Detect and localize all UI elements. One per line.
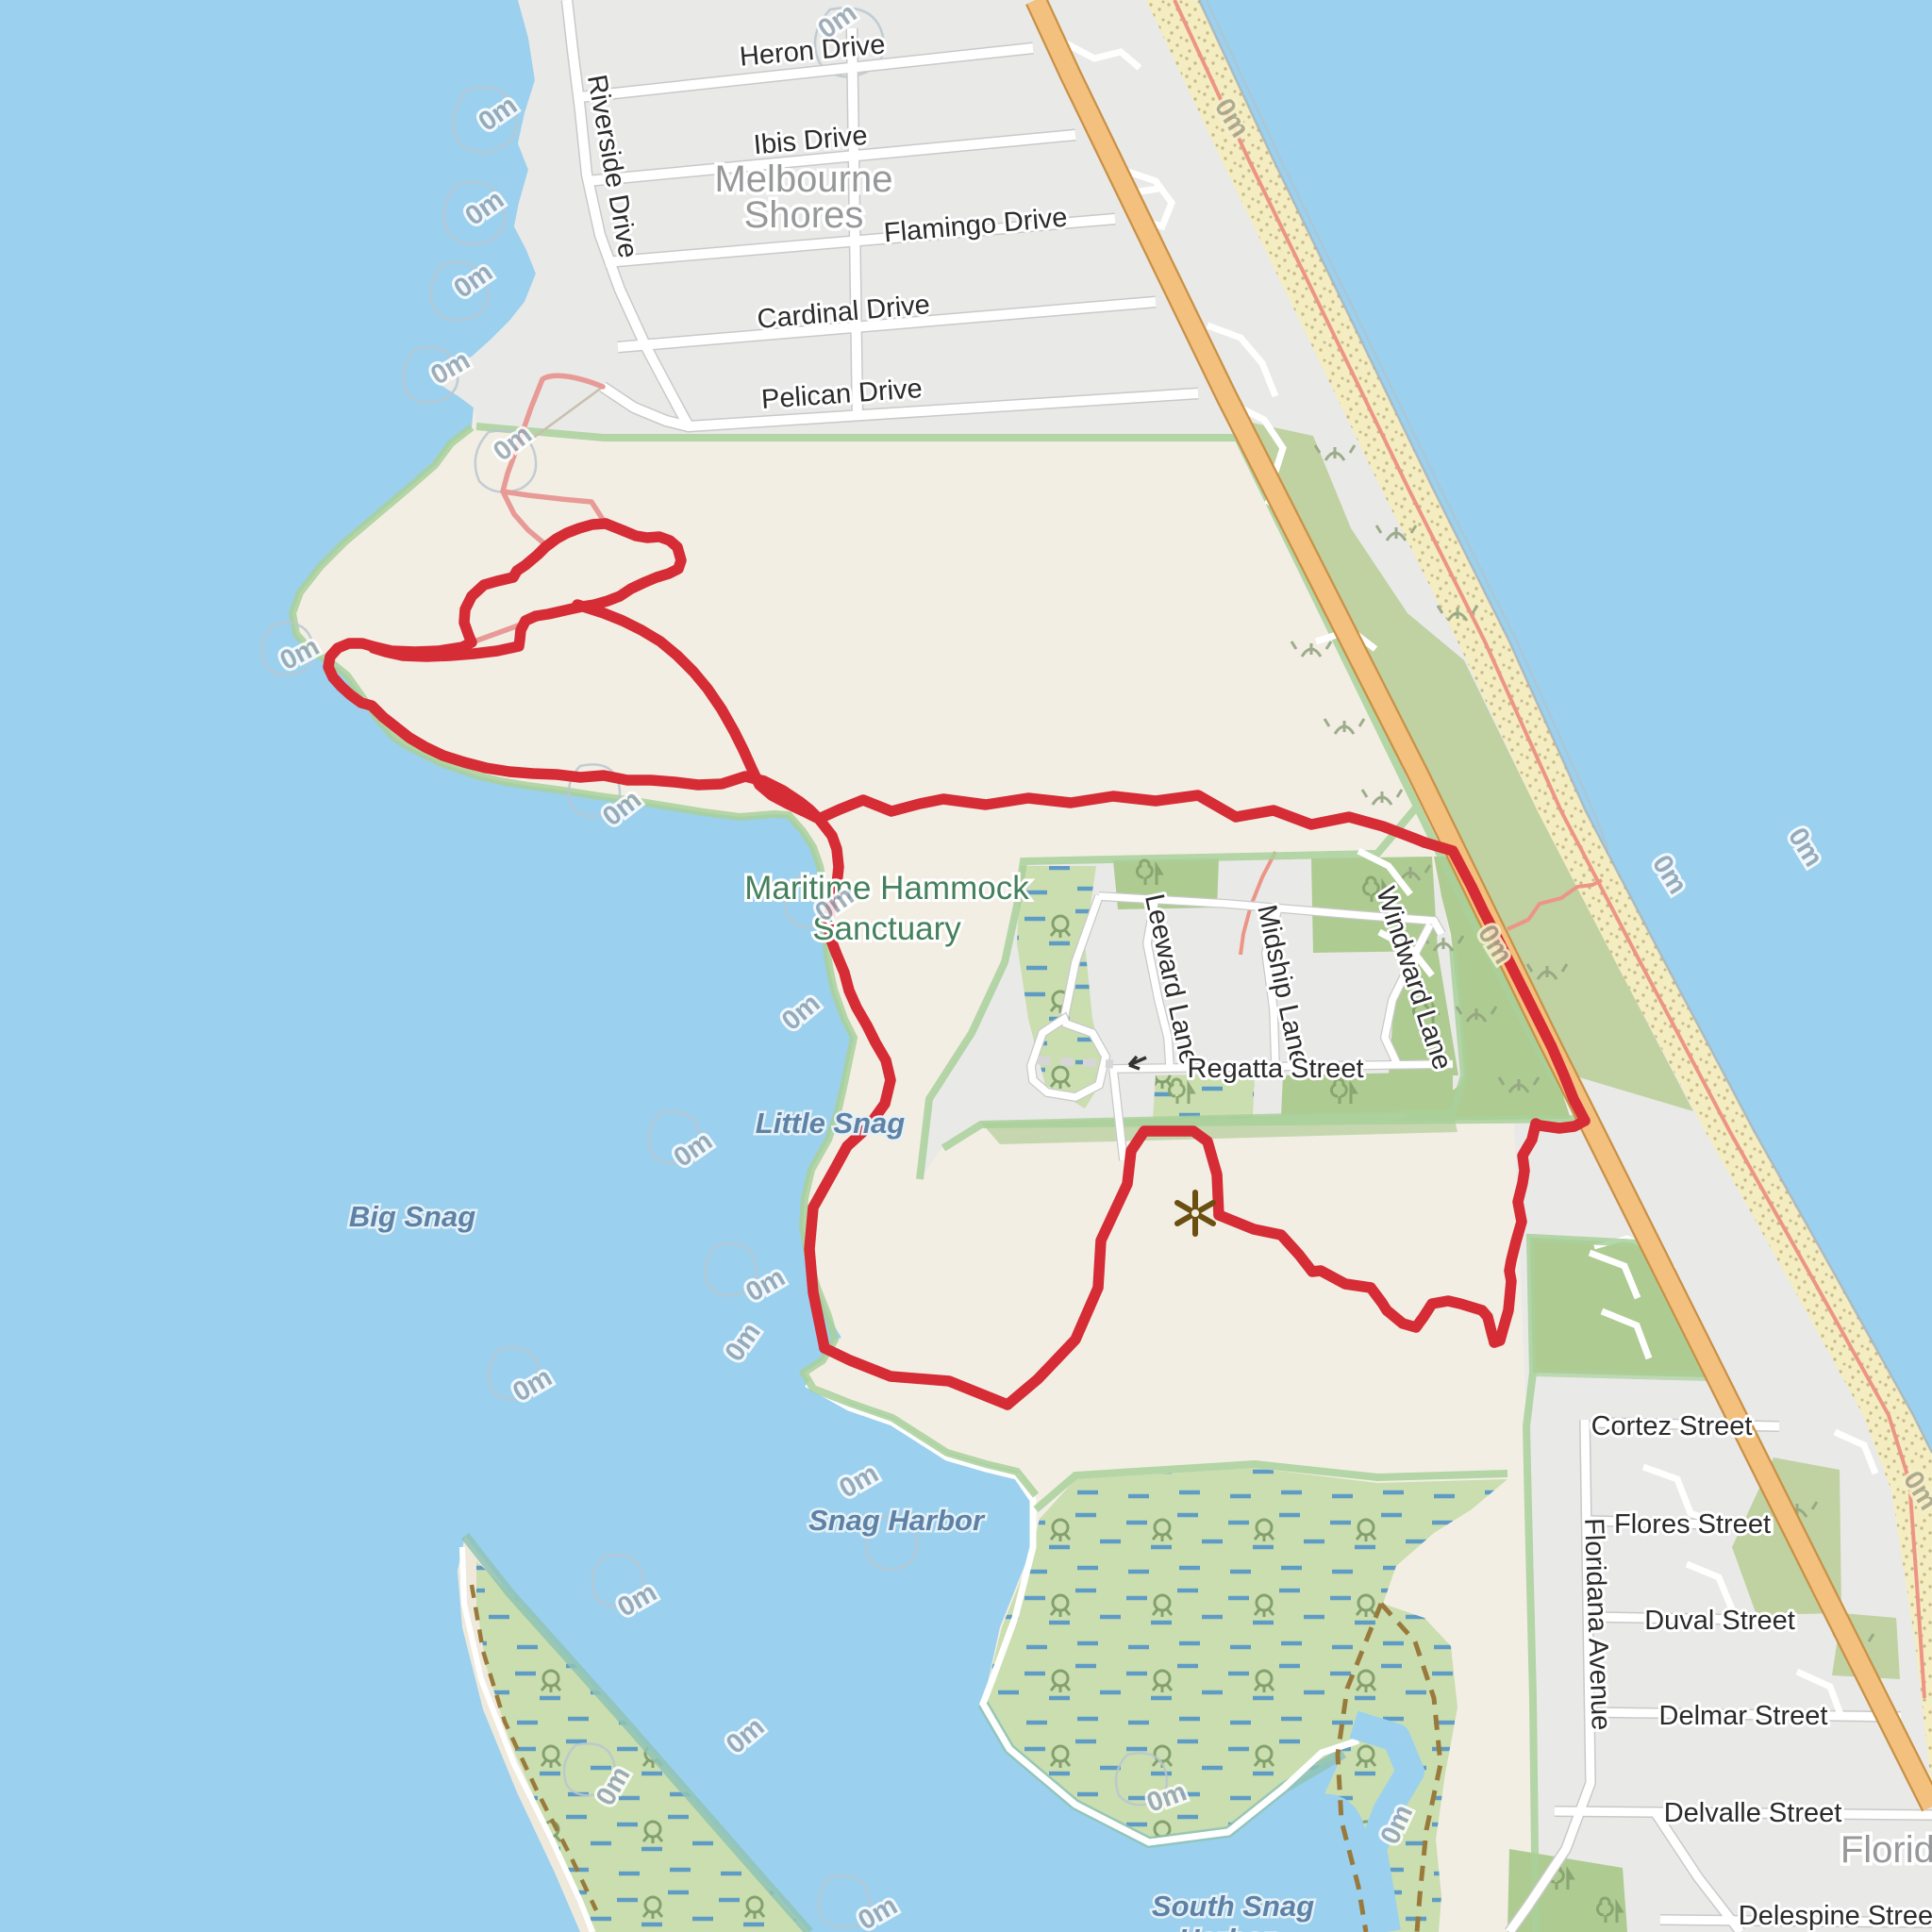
svg-text:Delmar Street: Delmar Street	[1659, 1701, 1828, 1731]
svg-text:Flores Street: Flores Street	[1614, 1509, 1771, 1540]
svg-text:Florida: Florida	[1840, 1829, 1932, 1871]
svg-text:Delvalle Street: Delvalle Street	[1664, 1798, 1842, 1828]
svg-text:Little Snag: Little Snag	[756, 1107, 906, 1140]
svg-text:Maritime Hammock: Maritime Hammock	[744, 870, 1029, 907]
svg-text:Delespine Street: Delespine Street	[1739, 1901, 1932, 1931]
svg-text:Duval Street: Duval Street	[1644, 1606, 1795, 1636]
svg-text:South Snag: South Snag	[1152, 1890, 1314, 1923]
svg-text:Shores: Shores	[744, 194, 864, 236]
svg-text:Regatta Street: Regatta Street	[1188, 1054, 1364, 1084]
svg-text:Big Snag: Big Snag	[349, 1200, 475, 1233]
svg-text:Snag Harbor: Snag Harbor	[808, 1504, 986, 1537]
svg-text:Harbor: Harbor	[1178, 1923, 1276, 1932]
svg-text:Cortez Street: Cortez Street	[1591, 1411, 1753, 1441]
